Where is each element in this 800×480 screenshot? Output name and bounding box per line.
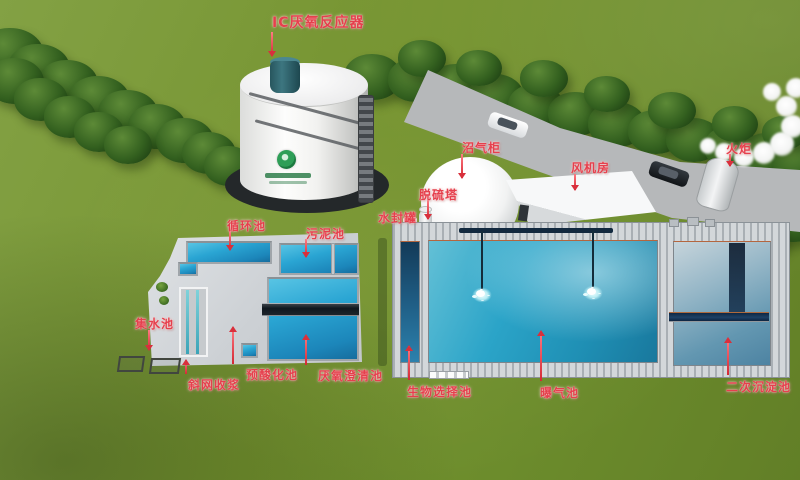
label-text: 二次沉淀池 bbox=[726, 378, 791, 395]
pipe-support-block bbox=[669, 219, 679, 227]
aerator-fountain bbox=[580, 283, 606, 303]
anaerobic-clarifier-pool bbox=[267, 277, 359, 361]
aerator-pole bbox=[592, 231, 594, 291]
label-text: 水封罐 bbox=[378, 209, 417, 226]
smoke-puff bbox=[763, 83, 781, 101]
smoke-puff bbox=[781, 115, 800, 138]
pretreatment-complex bbox=[145, 230, 365, 370]
collection-channel bbox=[179, 287, 208, 357]
arrow-bio-selector-pool bbox=[408, 346, 410, 380]
pipe-support-block bbox=[687, 217, 699, 226]
label-text: 污泥池 bbox=[306, 225, 345, 242]
aerator-fountain bbox=[469, 285, 495, 305]
pipe-support-block bbox=[705, 219, 715, 227]
clarifier-walkway bbox=[262, 303, 359, 316]
smoke-puff bbox=[700, 138, 716, 154]
bush-icon bbox=[156, 282, 168, 292]
aerator-pole bbox=[481, 231, 483, 293]
label-text: 火炬 bbox=[726, 140, 752, 157]
channel-water-line bbox=[186, 290, 189, 354]
small-pool-b bbox=[241, 343, 258, 358]
arrow-aeration-pool bbox=[540, 331, 542, 381]
secondary-clarifier-pool bbox=[673, 241, 771, 366]
inlet-pipe-box bbox=[149, 358, 181, 374]
label-text: 风机房 bbox=[571, 159, 610, 176]
label-text: 脱硫塔 bbox=[419, 186, 458, 203]
label-text: 曝气池 bbox=[540, 384, 579, 401]
channel-water-line bbox=[196, 290, 199, 354]
clarifier-pipe-bridge bbox=[669, 312, 769, 322]
treatment-plant-scene: IC厌氧反应器 沼气柜 脱硫塔 水封罐 风机房 火炬 循环池 污泥池 集水池 斜… bbox=[0, 0, 800, 480]
arrow-pre-acidification-pool bbox=[232, 327, 234, 364]
arrow-ic-reactor bbox=[271, 32, 273, 56]
small-pool-a bbox=[178, 262, 198, 276]
label-text: 预酸化池 bbox=[246, 366, 298, 383]
label-text: IC厌氧反应器 bbox=[272, 12, 364, 32]
smoke-puff bbox=[776, 96, 797, 117]
arrow-anaerobic-clarifier bbox=[305, 335, 307, 365]
label-text: 厌氧澄清池 bbox=[318, 367, 383, 384]
aeration-pool bbox=[428, 240, 658, 363]
clarifier-weir-band bbox=[729, 243, 745, 319]
label-text: 沼气柜 bbox=[462, 139, 501, 156]
inlet-pipe-box bbox=[117, 356, 145, 372]
arrow-secondary-clarifier bbox=[727, 338, 729, 375]
label-text: 斜网收浆 bbox=[188, 376, 240, 393]
arrow-biogas-holder bbox=[461, 154, 463, 178]
sludge-pool bbox=[279, 243, 359, 275]
aeration-basin-complex bbox=[392, 222, 790, 378]
label-text: 生物选择池 bbox=[407, 383, 472, 400]
arrow-fan-room bbox=[574, 174, 576, 190]
smoke-puff bbox=[786, 78, 800, 98]
arrow-collection-pool bbox=[148, 330, 150, 350]
bush-icon bbox=[159, 296, 169, 305]
arrow-screen-pulp-recovery bbox=[185, 360, 187, 374]
outlet-steps bbox=[429, 371, 469, 379]
label-text: 集水池 bbox=[135, 315, 174, 332]
pool-divider-wall bbox=[331, 243, 335, 275]
label-text: 循环池 bbox=[227, 217, 266, 234]
